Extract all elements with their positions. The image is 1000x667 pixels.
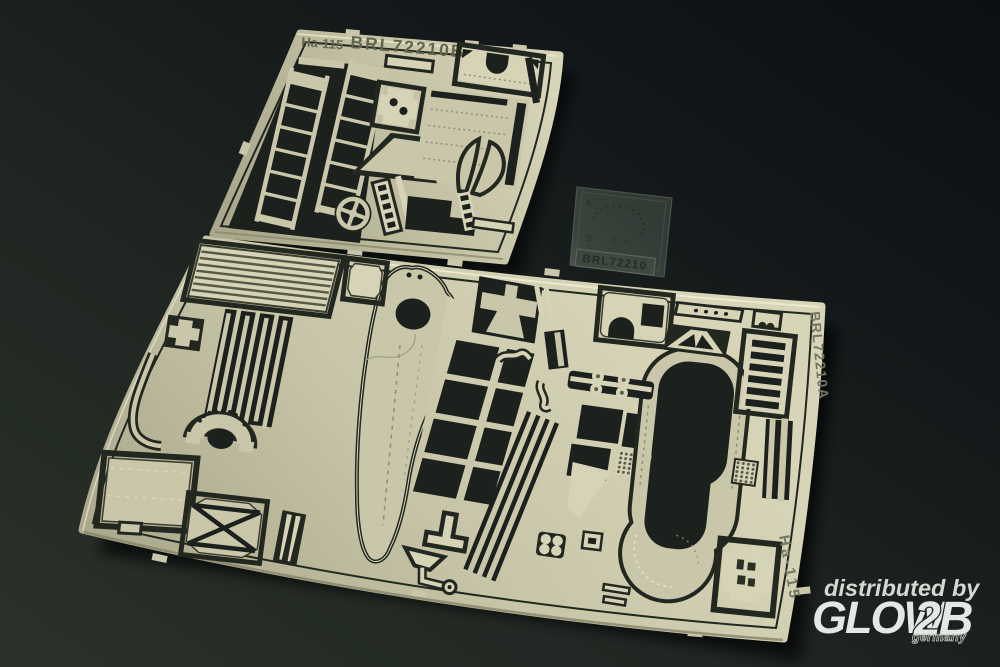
svg-text:B: B xyxy=(586,233,593,244)
svg-text:A: A xyxy=(585,198,592,209)
svg-text:germany: germany xyxy=(911,630,967,644)
